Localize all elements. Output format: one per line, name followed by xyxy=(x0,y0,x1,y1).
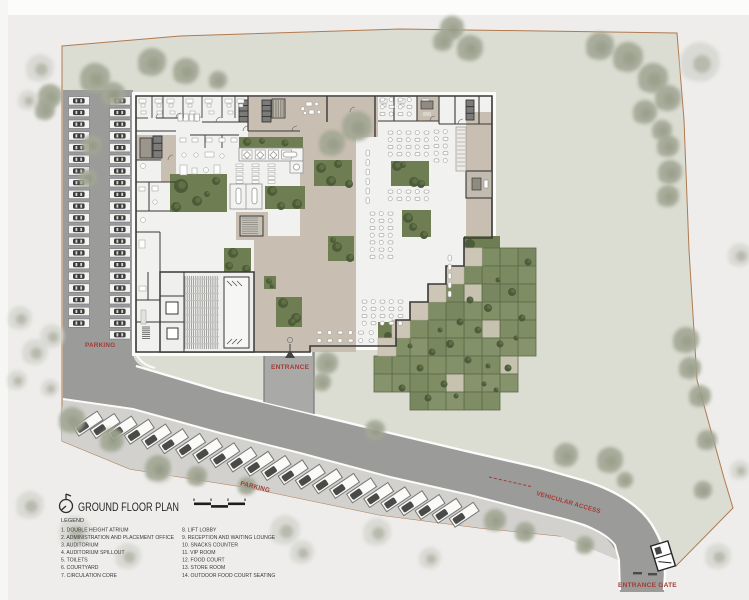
svg-text:8. LIFT LOBBY: 8. LIFT LOBBY xyxy=(182,528,217,534)
svg-text:3. AUDITORIUM: 3. AUDITORIUM xyxy=(61,543,99,549)
svg-text:1. DOUBLE HEIGHT ATRIUM: 1. DOUBLE HEIGHT ATRIUM xyxy=(61,528,128,534)
svg-text:LEGEND: LEGEND xyxy=(61,518,84,524)
svg-text:GROUND FLOOR PLAN: GROUND FLOOR PLAN xyxy=(78,500,179,514)
svg-text:6. COURTYARD: 6. COURTYARD xyxy=(61,565,99,571)
svg-text:11. VIP ROOM: 11. VIP ROOM xyxy=(182,550,216,556)
svg-text:4. AUDITORIUM SPILLOUT: 4. AUDITORIUM SPILLOUT xyxy=(61,550,125,556)
svg-text:PARKING: PARKING xyxy=(85,342,115,349)
svg-text:5. TOILETS: 5. TOILETS xyxy=(61,558,88,564)
svg-text:ENTRANCE GATE: ENTRANCE GATE xyxy=(618,582,677,589)
svg-text:14. OUTDOOR FOOD COURT SEATIN: 14. OUTDOOR FOOD COURT SEATING xyxy=(182,573,275,579)
svg-text:12. FOOD COURT: 12. FOOD COURT xyxy=(182,558,225,564)
svg-text:10. SNACKS COUNTER: 10. SNACKS COUNTER xyxy=(182,543,238,549)
svg-text:9. RECEPTION AND WAITING LOUN: 9. RECEPTION AND WAITING LOUNGE xyxy=(182,535,276,541)
svg-text:13. STORE ROOM: 13. STORE ROOM xyxy=(182,565,225,571)
svg-text:ENTRANCE: ENTRANCE xyxy=(271,364,310,371)
svg-text:7. CIRCULATION CORE: 7. CIRCULATION CORE xyxy=(61,573,118,579)
svg-text:2. ADMINISTRATION AND PLACEME: 2. ADMINISTRATION AND PLACEMENT OFFICE xyxy=(61,535,175,541)
